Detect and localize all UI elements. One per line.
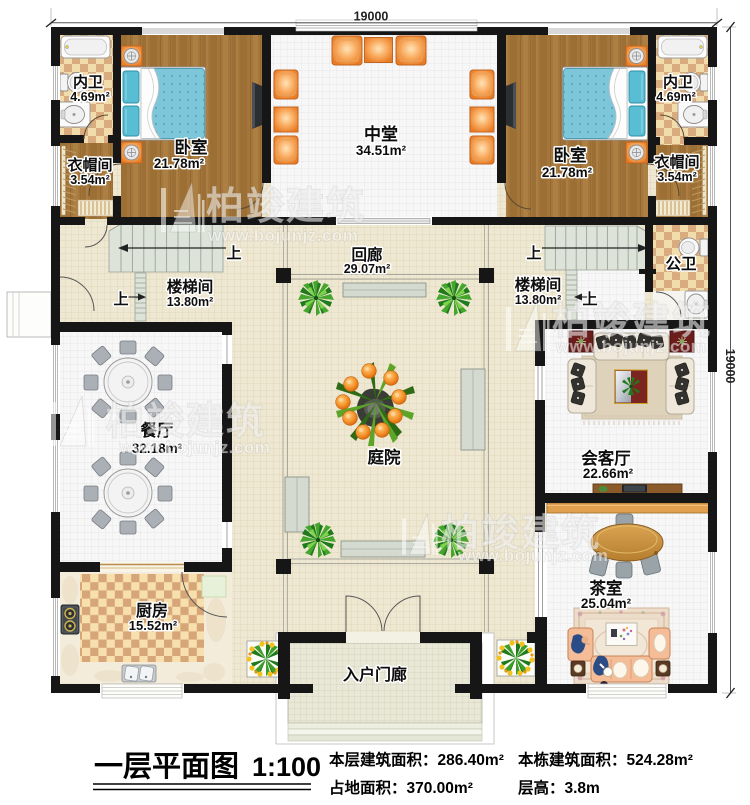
svg-text:上: 上 bbox=[113, 291, 128, 308]
svg-text:21.78m²: 21.78m² bbox=[154, 156, 205, 171]
svg-text:3.54m²: 3.54m² bbox=[70, 173, 110, 187]
svg-text:上: 上 bbox=[526, 245, 541, 262]
svg-text:会客厅: 会客厅 bbox=[581, 448, 631, 468]
svg-text:13.80m²: 13.80m² bbox=[167, 295, 214, 309]
svg-text:1:100: 1:100 bbox=[252, 752, 321, 782]
svg-text:楼梯间: 楼梯间 bbox=[515, 275, 562, 294]
svg-text:4.69m²: 4.69m² bbox=[656, 90, 696, 104]
svg-text:柏竣建筑: 柏竣建筑 bbox=[206, 186, 366, 228]
svg-text:楼梯间: 楼梯间 bbox=[167, 277, 214, 296]
svg-text:中堂: 中堂 bbox=[364, 124, 398, 144]
svg-text:3.54m²: 3.54m² bbox=[657, 170, 697, 184]
svg-text:内卫: 内卫 bbox=[73, 73, 103, 91]
svg-text:卧室: 卧室 bbox=[175, 137, 208, 157]
svg-text:www.bojunjz.com: www.bojunjz.com bbox=[119, 438, 270, 457]
svg-text:内卫: 内卫 bbox=[663, 73, 693, 91]
svg-text:本栋建筑面积：524.28m²: 本栋建筑面积：524.28m² bbox=[518, 750, 693, 769]
svg-text:上: 上 bbox=[226, 245, 241, 262]
svg-text:34.51m²: 34.51m² bbox=[356, 143, 407, 158]
svg-text:本层建筑面积：286.40m²: 本层建筑面积：286.40m² bbox=[329, 750, 504, 769]
svg-text:22.66m²: 22.66m² bbox=[583, 466, 634, 481]
svg-text:19000: 19000 bbox=[723, 349, 737, 384]
svg-text:庭院: 庭院 bbox=[368, 447, 402, 467]
svg-text:茶室: 茶室 bbox=[590, 578, 623, 598]
svg-text:衣帽间: 衣帽间 bbox=[67, 156, 112, 174]
svg-text:层高：3.8m: 层高：3.8m bbox=[518, 778, 600, 797]
svg-text:柏竣建筑: 柏竣建筑 bbox=[106, 401, 266, 443]
svg-text:www.bojunjz.com: www.bojunjz.com bbox=[207, 226, 358, 245]
svg-text:www.bojunjz.com: www.bojunjz.com bbox=[555, 337, 706, 356]
svg-text:29.07m²: 29.07m² bbox=[344, 262, 391, 276]
svg-text:入户门廊: 入户门廊 bbox=[343, 665, 407, 684]
svg-text:卧室: 卧室 bbox=[554, 145, 587, 165]
svg-text:19000: 19000 bbox=[354, 10, 389, 24]
svg-text:15.52m²: 15.52m² bbox=[129, 618, 178, 633]
svg-text:25.04m²: 25.04m² bbox=[581, 596, 632, 611]
svg-text:公卫: 公卫 bbox=[665, 255, 697, 273]
svg-text:一层平面图: 一层平面图 bbox=[94, 751, 239, 783]
svg-text:占地面积：370.00m²: 占地面积：370.00m² bbox=[329, 778, 473, 797]
svg-text:www.bojunjz.com: www.bojunjz.com bbox=[457, 546, 608, 565]
svg-text:21.78m²: 21.78m² bbox=[542, 165, 593, 180]
svg-text:4.69m²: 4.69m² bbox=[70, 90, 110, 104]
svg-text:衣帽间: 衣帽间 bbox=[654, 153, 699, 171]
